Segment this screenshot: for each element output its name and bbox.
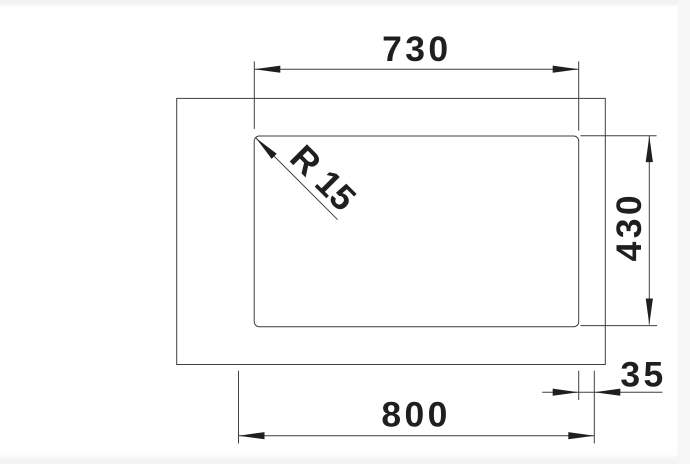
svg-text:730: 730: [382, 29, 451, 69]
svg-text:35: 35: [620, 355, 666, 395]
svg-text:430: 430: [609, 192, 649, 261]
svg-text:800: 800: [381, 395, 450, 435]
